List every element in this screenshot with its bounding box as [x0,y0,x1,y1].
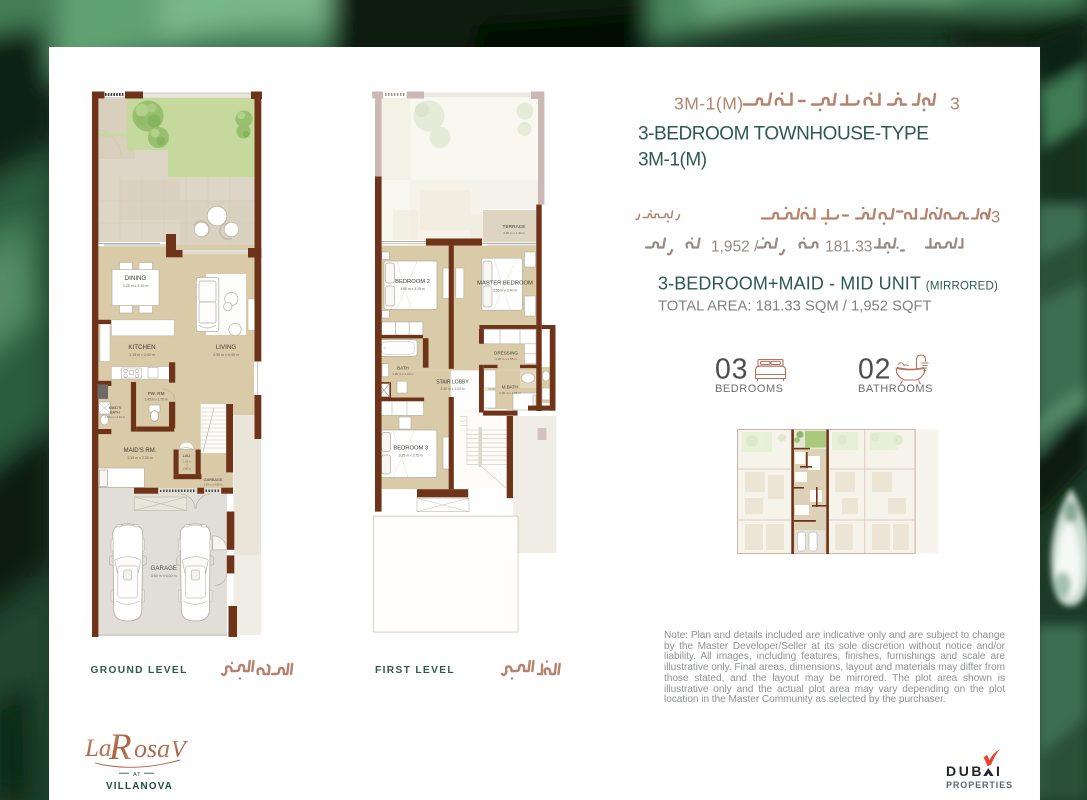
svg-text:GARBAGE: GARBAGE [204,478,223,482]
svg-text:03: 03 [715,354,748,386]
svg-text:2.35 m x 1.55 m: 2.35 m x 1.55 m [495,357,517,361]
svg-text:DUB: DUB [946,763,984,779]
svg-text:R: R [108,727,132,768]
svg-text:osa: osa [134,734,170,763]
svg-text:1.10 m x 0.80 m: 1.10 m x 0.80 m [204,483,223,487]
svg-text:FIRST LEVEL: FIRST LEVEL [375,665,455,676]
svg-text:3.15 m x 2.45 m: 3.15 m x 2.45 m [129,353,155,357]
svg-text:2.05 m x 1.85 m: 2.05 m x 1.85 m [499,391,521,395]
svg-text:1.06 m x 2.10 m: 1.06 m x 2.10 m [105,415,126,419]
svg-text:3.25 m x 3.10 m: 3.25 m x 3.10 m [123,284,149,288]
svg-text:5.60 m x 6.00 m: 5.60 m x 6.00 m [151,574,177,578]
svg-text:0.80 m: 0.80 m [183,467,191,471]
svg-text:MAID'S RM.: MAID'S RM. [124,448,157,454]
svg-text:AT: AT [133,772,141,778]
svg-text:3.15 m x 2.30 m: 3.15 m x 2.30 m [127,456,153,460]
svg-text:DINING: DINING [125,275,147,282]
svg-text:LAU.: LAU. [183,454,191,458]
svg-text:BATHROOMS: BATHROOMS [858,383,933,395]
svg-text:1.00 m: 1.00 m [183,460,191,464]
svg-text:02: 02 [858,354,891,386]
svg-text:DRESSING: DRESSING [494,351,518,356]
svg-text:3.55 m x 6.40 m: 3.55 m x 6.40 m [213,353,239,357]
svg-text:STAIR LOBBY: STAIR LOBBY [436,380,469,386]
svg-text:BEDROOM 2: BEDROOM 2 [395,279,430,285]
svg-text:3M-1(M): 3M-1(M) [674,94,744,114]
svg-text:3.15 m x 3.75 m: 3.15 m x 3.75 m [399,454,423,458]
svg-text:La: La [84,735,111,762]
svg-text:3-BEDROOM TOWNHOUSE-TYPE: 3-BEDROOM TOWNHOUSE-TYPE [638,124,928,145]
svg-text:I: I [996,763,1003,779]
svg-text:BATH: BATH [397,366,408,371]
svg-text:PW. RM: PW. RM [148,391,165,396]
svg-text:TERRACE: TERRACE [503,224,526,230]
svg-text:1,952 /: 1,952 / [711,239,759,256]
svg-text:BEDROOMS: BEDROOMS [715,383,784,395]
svg-text:2.30 m x 1.30 m: 2.30 m x 1.30 m [503,231,525,235]
svg-text:MASTER BEDROOM: MASTER BEDROOM [477,281,533,287]
svg-text:PROPERTIES: PROPERTIES [946,780,1013,790]
svg-text:VILLANOVA: VILLANOVA [106,781,173,792]
svg-text:1.45 m x 1.75 m: 1.45 m x 1.75 m [145,398,168,402]
svg-text:181.33: 181.33 [825,239,872,256]
svg-text:3: 3 [950,94,960,114]
svg-text:3: 3 [991,209,1000,227]
svg-text:V: V [171,737,188,763]
svg-text:LIVING: LIVING [216,344,236,351]
svg-text:BEDROOM 3: BEDROOM 3 [393,446,428,452]
svg-text:GARAGE: GARAGE [151,565,177,572]
svg-text:3-BEDROOM+MAID - MID UNIT (MIR: 3-BEDROOM+MAID - MID UNIT (MIRRORED) [658,274,998,294]
svg-text:GROUND LEVEL: GROUND LEVEL [91,665,188,676]
svg-text:M.BATH: M.BATH [502,385,518,390]
svg-text:2.30 m x 1.20 m: 2.30 m x 1.20 m [440,387,464,391]
svg-text:BATH: BATH [110,411,120,415]
svg-text:KITCHEN: KITCHEN [128,344,155,351]
svg-text:MAID'S: MAID'S [109,406,122,410]
svg-text:TOTAL AREA: 181.33 SQM / 1,952: TOTAL AREA: 181.33 SQM / 1,952 SQFT [658,299,932,315]
svg-text:3.60 m x 3.15 m: 3.60 m x 3.15 m [400,287,424,291]
svg-text:3.55 m x 3.40 m: 3.55 m x 3.40 m [493,289,517,293]
svg-text:1.95 m x 2.00 m: 1.95 m x 2.00 m [392,372,414,376]
svg-text:3M-1(M): 3M-1(M) [638,150,707,171]
